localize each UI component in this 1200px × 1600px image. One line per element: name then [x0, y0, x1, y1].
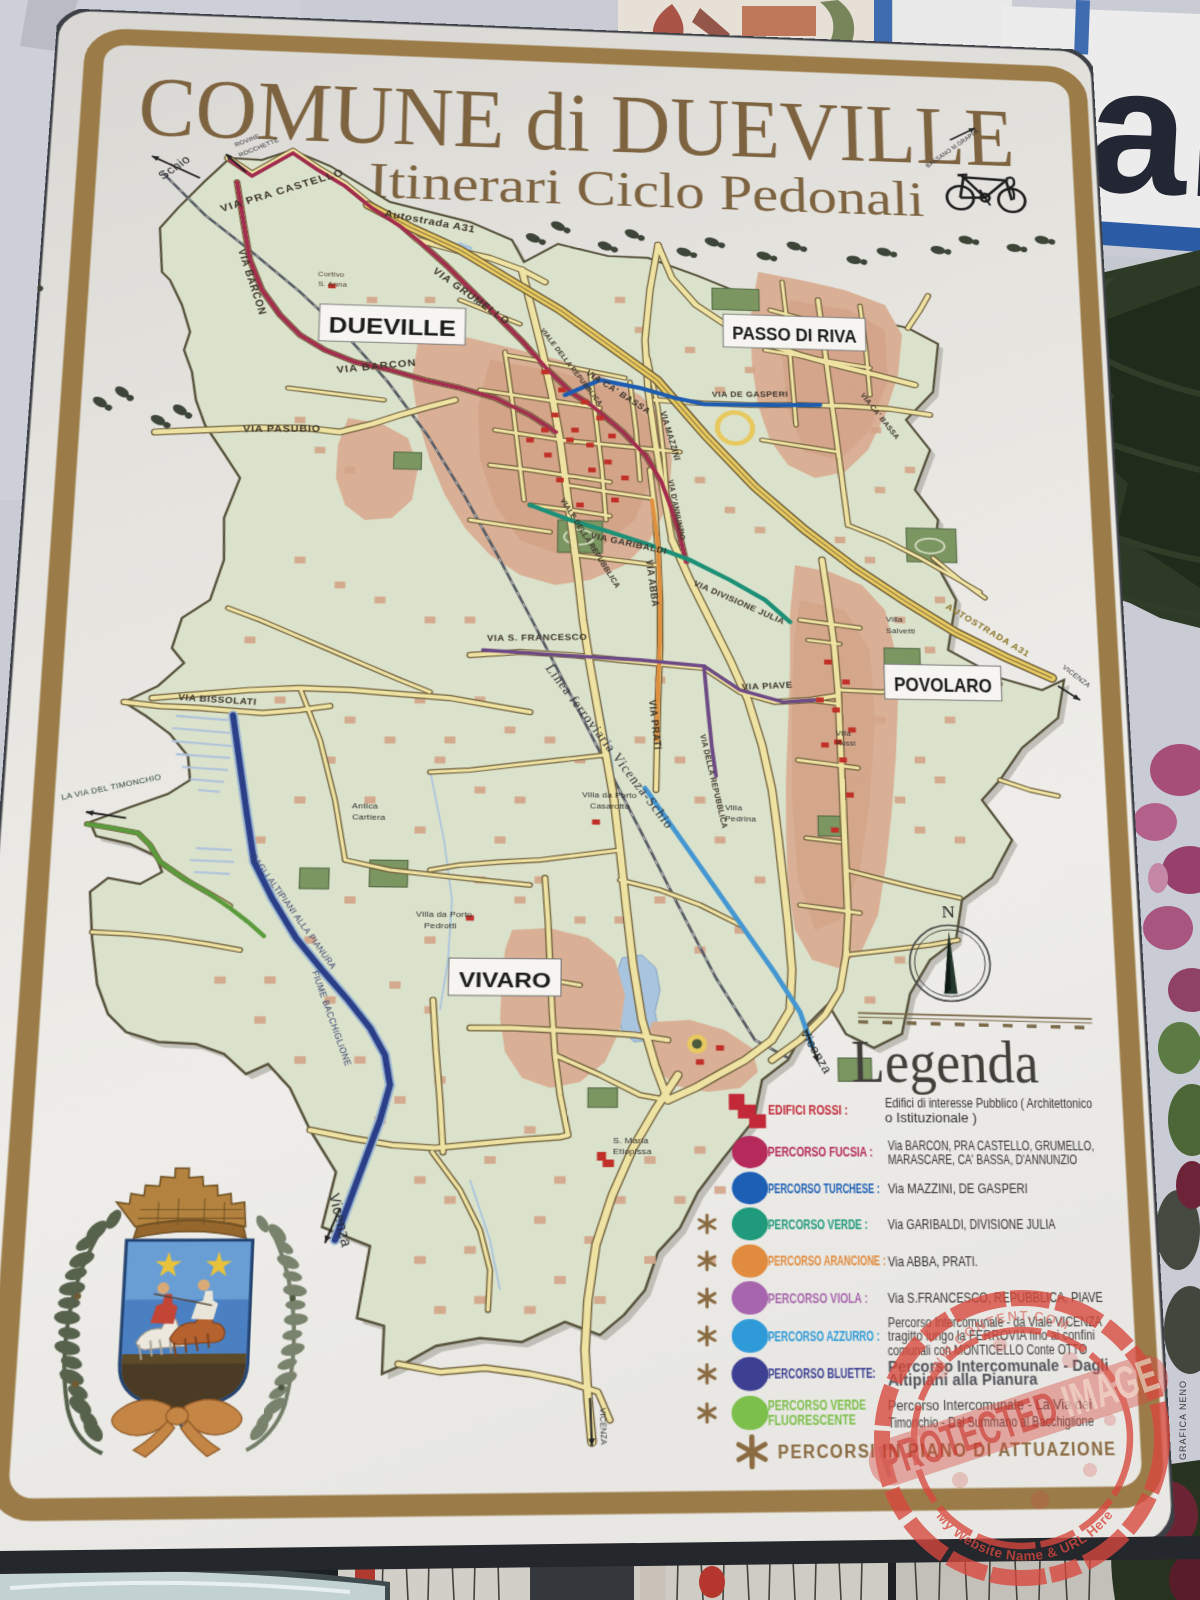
svg-text:GRAFICA NENO: GRAFICA NENO [1178, 1380, 1188, 1460]
